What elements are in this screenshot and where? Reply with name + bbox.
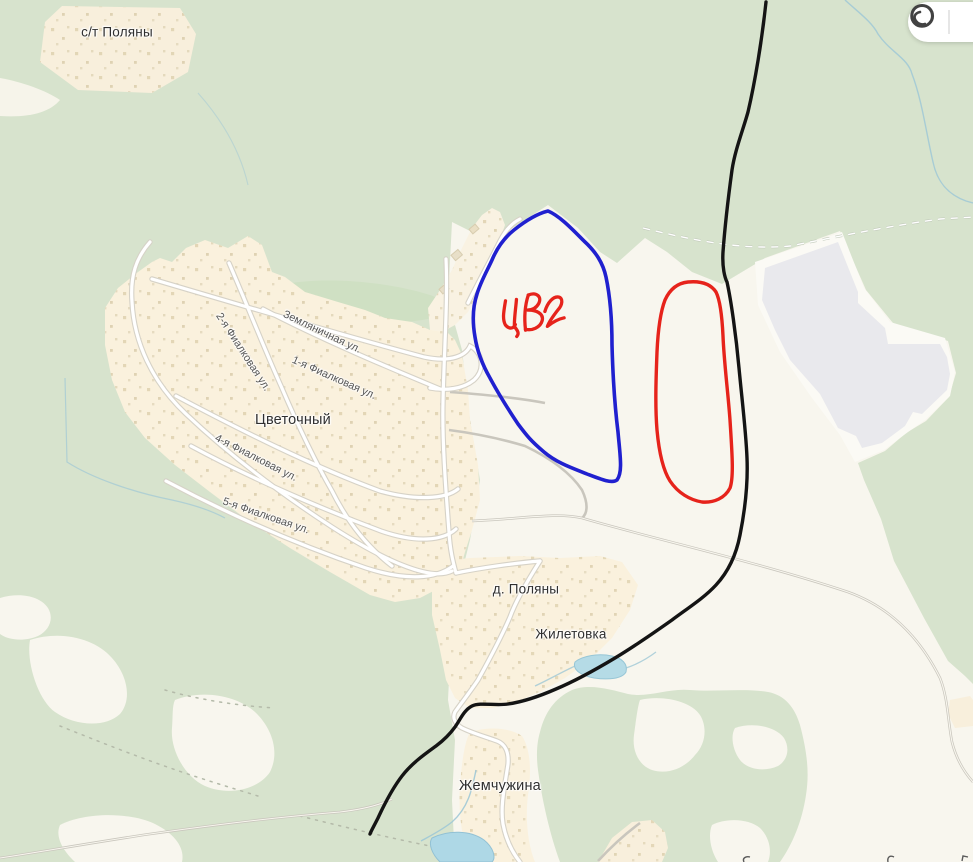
blue-outline-shape[interactable] — [473, 211, 620, 481]
handwritten-label[interactable] — [503, 293, 565, 337]
partial-tool-icon — [908, 2, 936, 30]
drawing-layer — [0, 0, 973, 862]
partial-tool-button[interactable] — [950, 2, 973, 42]
red-outline-shape[interactable] — [656, 282, 732, 502]
drawing-toolbar — [908, 2, 973, 42]
black-route-line[interactable] — [370, 2, 766, 834]
map-canvas[interactable]: с/т Поляны Цветочный д. Поляны Жилетовка… — [0, 0, 973, 862]
